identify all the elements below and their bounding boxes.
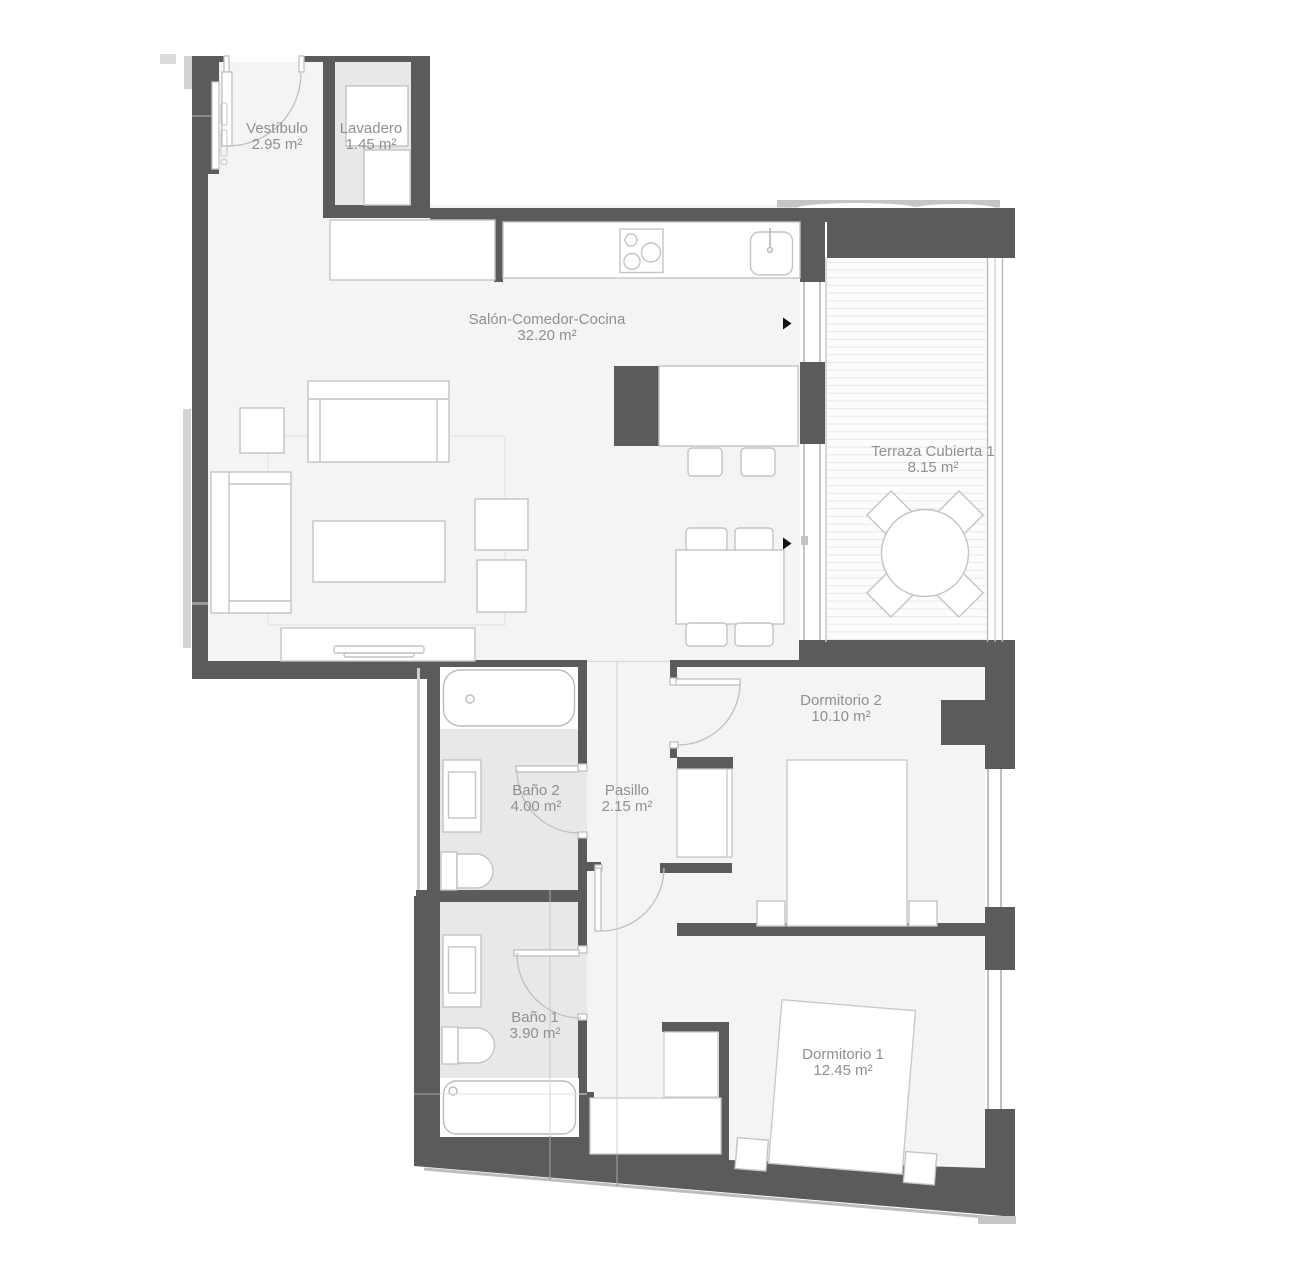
svg-text:2.15 m²: 2.15 m²	[602, 798, 653, 815]
svg-text:Pasillo: Pasillo	[605, 782, 649, 799]
svg-text:Vestíbulo: Vestíbulo	[246, 120, 308, 137]
svg-text:8.15 m²: 8.15 m²	[908, 459, 959, 476]
svg-text:Dormitorio 1: Dormitorio 1	[802, 1046, 884, 1063]
svg-text:Dormitorio 2: Dormitorio 2	[800, 692, 882, 709]
svg-text:3.90 m²: 3.90 m²	[510, 1025, 561, 1042]
svg-text:10.10 m²: 10.10 m²	[811, 708, 870, 725]
svg-text:Terraza Cubierta 1: Terraza Cubierta 1	[871, 443, 994, 460]
svg-text:Salón-Comedor-Cocina: Salón-Comedor-Cocina	[469, 311, 626, 328]
svg-text:32.20 m²: 32.20 m²	[517, 327, 576, 344]
svg-text:2.95 m²: 2.95 m²	[252, 136, 303, 153]
svg-text:4.00 m²: 4.00 m²	[511, 798, 562, 815]
svg-text:1.45 m²: 1.45 m²	[346, 136, 397, 153]
svg-text:Lavadero: Lavadero	[340, 120, 403, 137]
svg-text:Baño 2: Baño 2	[512, 782, 560, 799]
svg-text:Baño 1: Baño 1	[511, 1009, 559, 1026]
svg-text:12.45 m²: 12.45 m²	[813, 1062, 872, 1079]
